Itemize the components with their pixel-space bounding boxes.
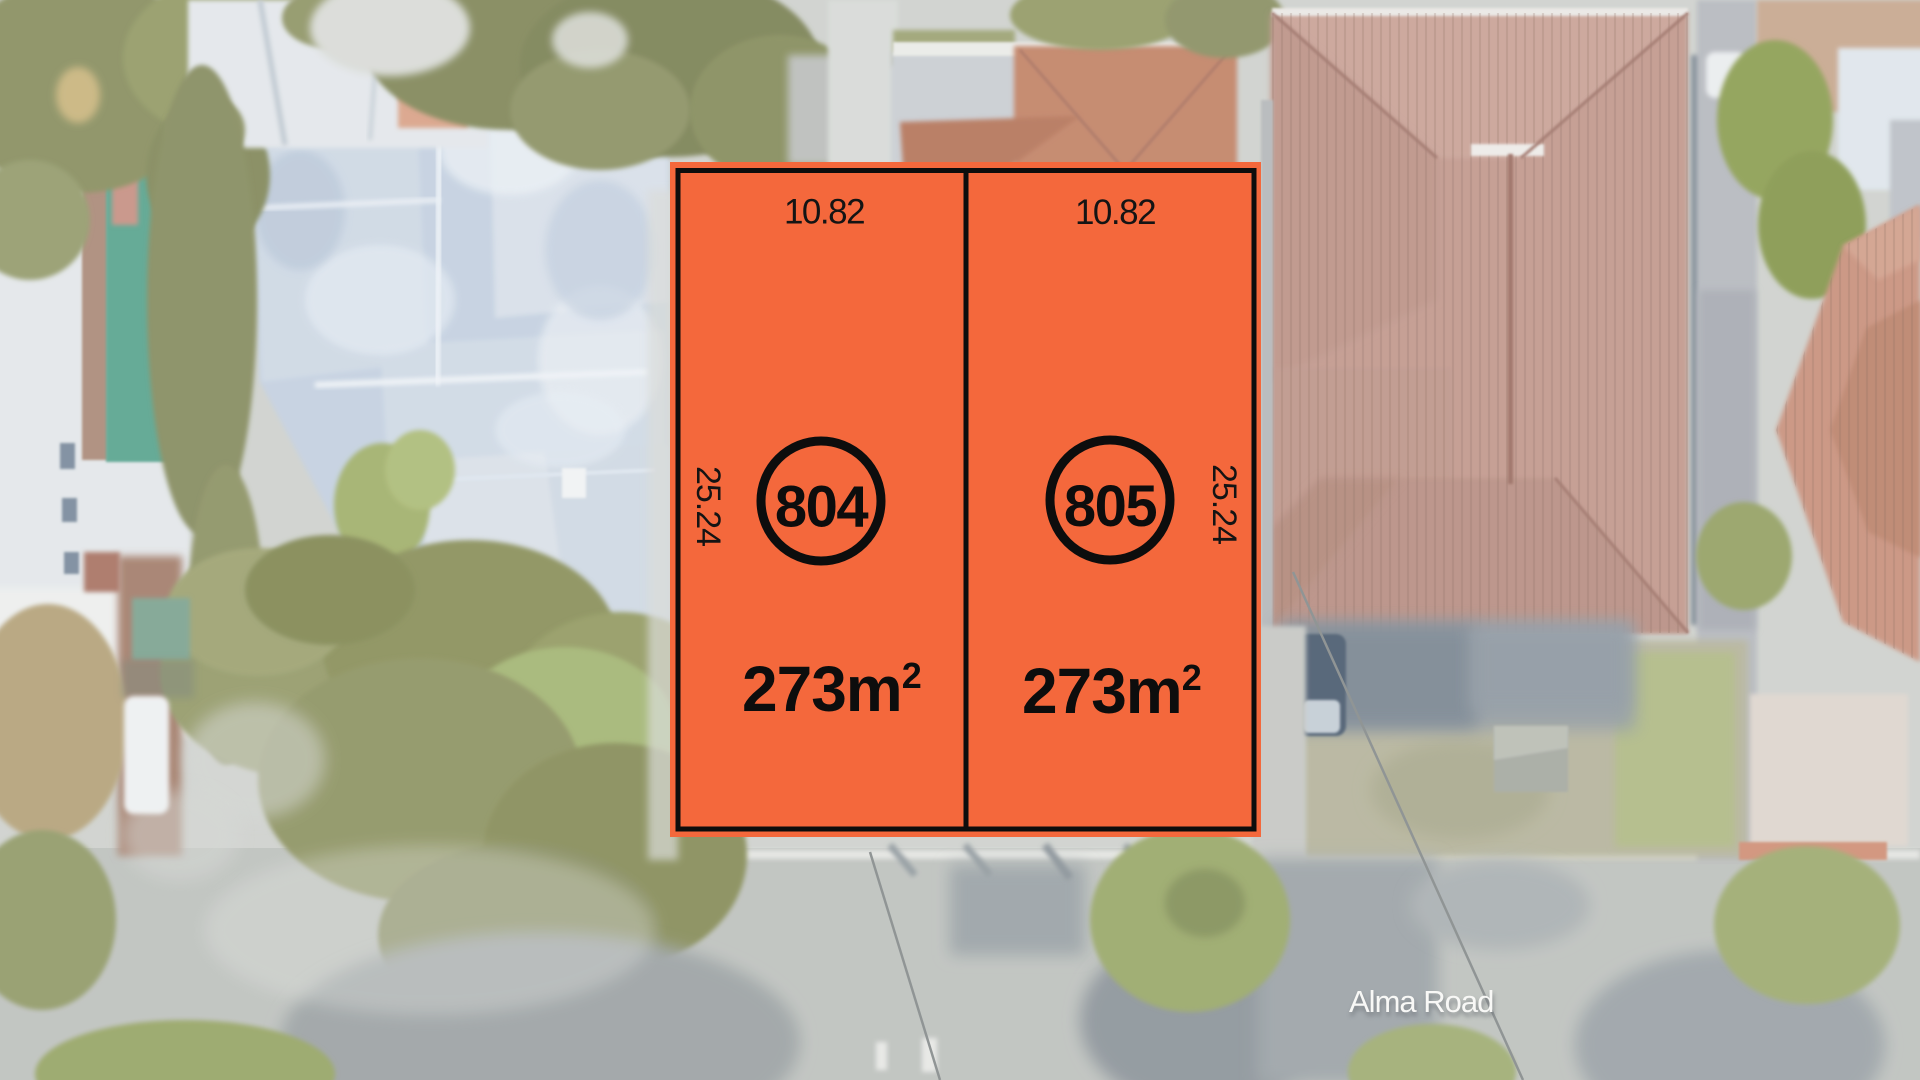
svg-text:273m2: 273m2	[1022, 655, 1201, 727]
svg-text:25.24: 25.24	[689, 466, 727, 546]
svg-text:805: 805	[1064, 474, 1157, 539]
svg-text:Alma Road: Alma Road	[1349, 984, 1493, 1019]
svg-text:804: 804	[775, 475, 869, 540]
svg-text:273m2: 273m2	[742, 653, 921, 725]
svg-text:25.24: 25.24	[1205, 464, 1243, 544]
svg-text:10.82: 10.82	[784, 193, 864, 232]
svg-text:10.82: 10.82	[1075, 193, 1155, 232]
